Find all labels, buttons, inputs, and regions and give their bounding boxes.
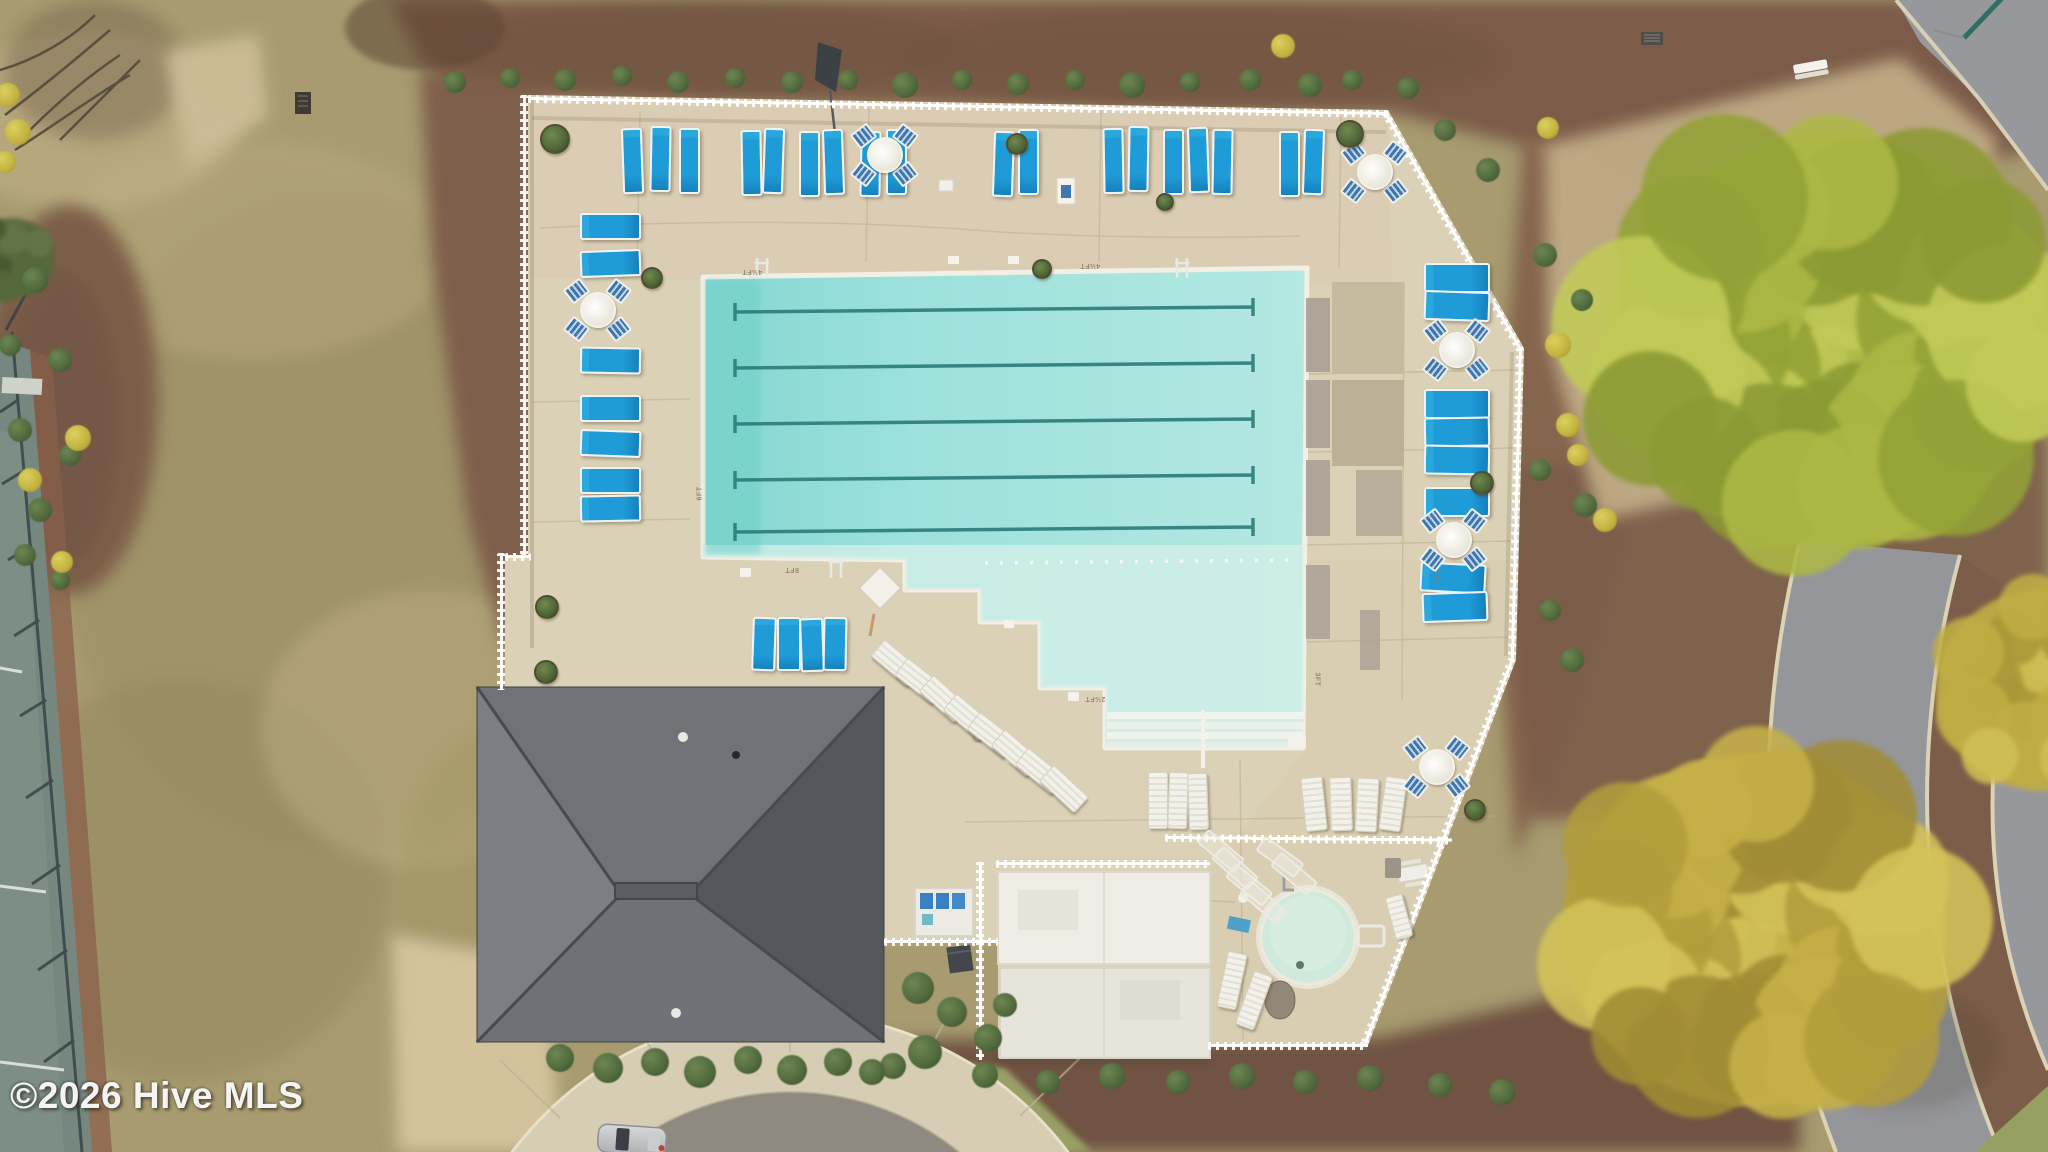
parked-car: [597, 1124, 667, 1152]
recycle-station: [915, 888, 973, 936]
court-bench: [2, 377, 43, 395]
clubhouse-roof: [477, 687, 884, 1042]
roof-vent: [678, 732, 688, 742]
side-table: [972, 731, 984, 743]
roof-vent-dark: [732, 751, 740, 759]
side-table: [1003, 750, 1017, 764]
aerial-photo-pool-complex: 4½FT4½FT6FT8FT2½FT3FT3FT ©2026 Hive MLS: [0, 0, 2048, 1152]
boulder: [1265, 981, 1295, 1019]
gray-chair: [1385, 858, 1401, 878]
storm-drain: [295, 92, 311, 114]
road-bottom-right: [1768, 540, 2048, 1152]
pavilion: [996, 872, 1212, 1066]
scenery: [0, 0, 2048, 1152]
storm-drain: [1641, 32, 1663, 45]
drain: [1296, 961, 1304, 969]
mls-watermark: ©2026 Hive MLS: [10, 1075, 303, 1117]
grill: [946, 944, 973, 973]
roof-vent: [671, 1008, 681, 1018]
